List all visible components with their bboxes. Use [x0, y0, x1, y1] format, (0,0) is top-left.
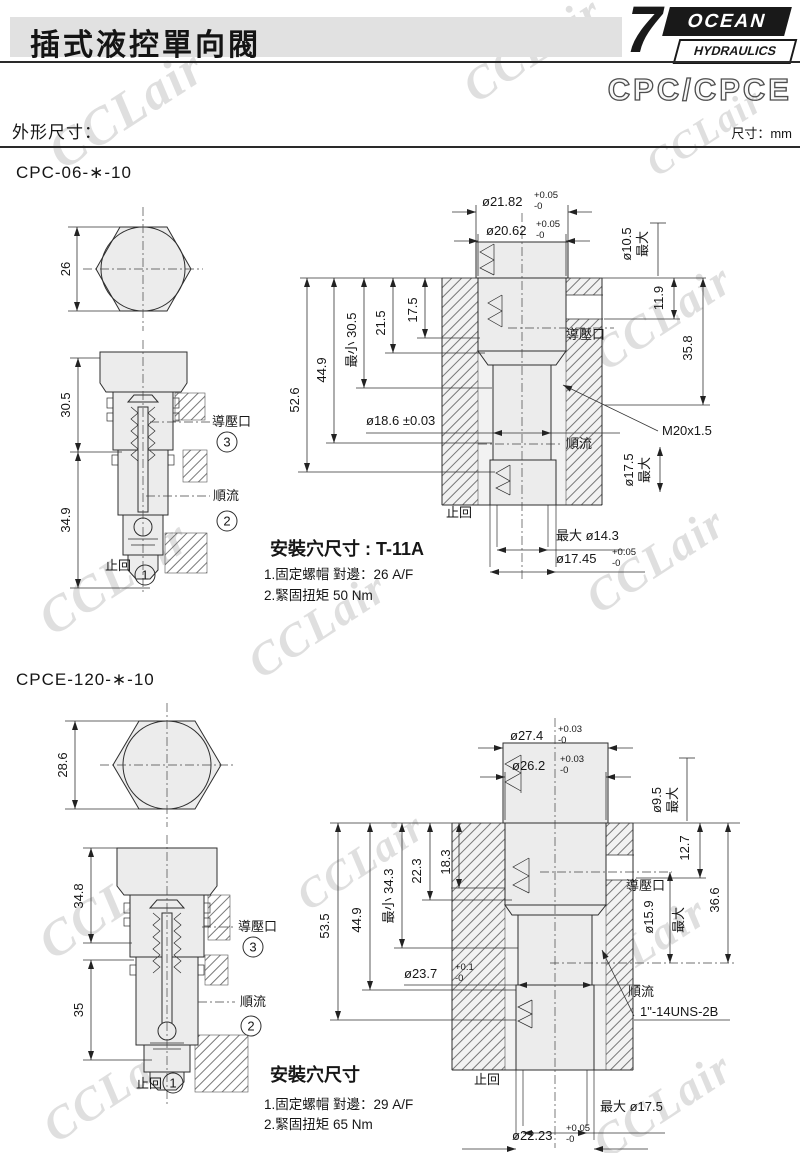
- fig2-bore2-tol-minus: -0: [560, 765, 568, 776]
- fig2-bottom-bore2-dim: ø22.23: [512, 1128, 552, 1143]
- fig2-bottom-bore2-tol-plus: +0.05: [566, 1123, 590, 1134]
- fig1-flow-port-label: 順流: [213, 488, 239, 503]
- fig1-total-depth-dim: 52.6: [287, 387, 302, 412]
- fig2-mid-bore-dim: ø15.9: [641, 900, 656, 933]
- fig1-out-bore-dim: ø17.5: [621, 453, 636, 486]
- fig2-depth4-dim: 22.3: [409, 858, 424, 883]
- fig1-port-1: 1: [141, 568, 148, 583]
- fig1-cavity-pilot-label: 導壓口: [566, 327, 605, 342]
- fig1-bottom-bore1-dim: 最大 ø14.3: [556, 528, 619, 543]
- fig2-depth2-dim: 44.9: [349, 907, 364, 932]
- fig2-bore2-dim: ø26.2: [512, 758, 545, 773]
- fig2-cavity-check-label: 止回: [474, 1072, 500, 1087]
- fig1-bore1-dim: ø21.82: [482, 194, 522, 209]
- fig1-note-2: 2.緊固扭矩 50 Nm: [264, 588, 373, 603]
- fig2-bore1-tol-plus: +0.03: [558, 724, 582, 735]
- fig1-valve-section: 30.5 34.9 導壓口 3 順流 2 止回 1: [58, 340, 251, 595]
- brand-name: OCEAN: [662, 7, 792, 36]
- fig2-cavity-title: 安裝穴尺寸: [270, 1064, 360, 1085]
- fig2-length-top-dim: 34.8: [71, 883, 86, 908]
- fig2-port-3: 3: [249, 940, 256, 955]
- fig2-valve-section: 34.8 35 導壓口 3 順流 2 止回 1: [71, 835, 277, 1105]
- fig1-bore2-dim: ø20.62: [486, 223, 526, 238]
- fig1-bore2-tol-minus: -0: [536, 230, 544, 241]
- fig2-hex-view: 28.6: [55, 703, 234, 827]
- catalog-page: CCLair CCLair CCLair CCLair CCLair CCLai…: [0, 0, 800, 1153]
- fig1-depth2-dim: 44.9: [314, 357, 329, 382]
- fig2-pilot-port-label: 導壓口: [238, 919, 277, 934]
- brand-sub: HYDRAULICS: [675, 41, 795, 62]
- fig1-bore1-tol-minus: -0: [534, 201, 542, 212]
- fig1-bottom-bore2-tol-plus: +0.05: [612, 547, 636, 558]
- fig1-cavity-flow-label: 順流: [566, 436, 592, 451]
- fig1-length-top-dim: 30.5: [58, 392, 73, 417]
- fig2-seat-bore-tol-minus: -0: [455, 973, 463, 984]
- fig2-thread-depth-dim: 36.6: [707, 887, 722, 912]
- fig1-model: CPC-06-∗-10: [16, 163, 132, 182]
- fig1-depth5-dim: 17.5: [405, 297, 420, 322]
- fig1-hex-af-dim: 26: [58, 262, 73, 276]
- fig1-pilot-port-label: 導壓口: [212, 414, 251, 429]
- fig2-bore2-tol-plus: +0.03: [560, 754, 584, 765]
- fig1-bore2-tol-plus: +0.05: [536, 219, 560, 230]
- brand-logo: 7 OCEAN HYDRAULICS: [626, 2, 794, 64]
- fig1-bottom-bore2-dim: ø17.45: [556, 551, 596, 566]
- fig1-pilot-bore-dim: ø10.5: [619, 227, 634, 260]
- fig2-port-2: 2: [247, 1019, 254, 1034]
- fig1-bore1-tol-plus: +0.05: [534, 190, 558, 201]
- fig2-note-2: 2.緊固扭矩 65 Nm: [264, 1117, 373, 1132]
- fig2-model: CPCE-120-∗-10: [16, 670, 155, 689]
- fig2-pilot-bore-dim: ø9.5: [649, 787, 664, 813]
- fig2-seat-bore-tol-plus: +0.1: [455, 962, 474, 973]
- fig2-depth3-dim: 最小 34.3: [381, 869, 396, 924]
- fig2-bottom-bore2-tol-minus: -0: [566, 1134, 574, 1145]
- fig1-length-bottom-dim: 34.9: [58, 507, 73, 532]
- section-label: 外形尺寸：: [12, 118, 102, 143]
- fig2-seat-bore-dim: ø23.7: [404, 966, 437, 981]
- fig2-port-1: 1: [169, 1076, 176, 1091]
- fig1-note-1: 1.固定螺帽 對邊：26 A/F: [264, 567, 413, 582]
- fig1-cavity-section: ø21.82 +0.05 -0 ø20.62 +0.05 -0 ø10.5 最大…: [287, 190, 712, 580]
- fig2-pilot-depth-dim: 12.7: [677, 835, 692, 860]
- fig2-bore1-tol-minus: -0: [558, 735, 566, 746]
- fig2-thread-spec: 1"-14UNS-2B: [640, 1004, 718, 1019]
- fig1-hex-view: 26: [58, 207, 203, 331]
- section-divider: [0, 146, 800, 148]
- fig2-depth5-dim: 18.3: [438, 849, 453, 874]
- fig1-seat-bore-dim: ø18.6 ±0.03: [366, 413, 435, 428]
- page-title: 插式液控單向閥: [30, 20, 261, 64]
- fig2-note-1: 1.固定螺帽 對邊：29 A/F: [264, 1097, 413, 1112]
- fig2-pilot-bore-max: 最大: [665, 787, 680, 813]
- fig2-cavity-flow-label: 順流: [628, 984, 654, 999]
- fig1-pilot-depth-dim: 11.9: [651, 286, 666, 310]
- fig2-bottom-bore1-dim: 最大 ø17.5: [600, 1099, 663, 1114]
- fig1-check-port-label: 止回: [105, 558, 131, 573]
- fig1-thread-spec: M20x1.5: [662, 423, 712, 438]
- fig1-thread-depth-dim: 35.8: [680, 335, 695, 360]
- fig1-out-bore-max: 最大: [637, 457, 652, 483]
- fig1-drawing: CPC-06-∗-10 26: [0, 155, 800, 660]
- fig1-port-3: 3: [223, 435, 230, 450]
- fig2-bore1-dim: ø27.4: [510, 728, 543, 743]
- fig2-flow-port-label: 順流: [240, 994, 266, 1009]
- fig1-cavity-title: 安裝穴尺寸 : T-11A: [270, 538, 424, 559]
- series-code: CPC/CPCE: [608, 72, 792, 108]
- fig2-length-bottom-dim: 35: [71, 1003, 86, 1017]
- unit-label: 尺寸：mm: [731, 123, 792, 142]
- fig1-depth3-dim: 最小 30.5: [344, 313, 359, 368]
- fig1-port-2: 2: [223, 514, 230, 529]
- fig1-bottom-bore2-tol-minus: -0: [612, 558, 620, 569]
- fig2-mid-bore-max: 最大: [671, 907, 686, 933]
- fig1-pilot-bore-max: 最大: [635, 231, 650, 257]
- fig2-hex-af-dim: 28.6: [55, 752, 70, 777]
- fig2-cavity-pilot-label: 導壓口: [626, 878, 665, 893]
- fig2-check-port-label: 止回: [136, 1076, 162, 1091]
- fig2-drawing: CPCE-120-∗-10 28.6: [0, 660, 800, 1153]
- fig2-cavity-section: ø27.4 +0.03 -0 ø26.2 +0.03 -0 ø9.5 最大 12…: [317, 718, 740, 1149]
- fig2-total-depth-dim: 53.5: [317, 913, 332, 938]
- fig1-cavity-check-label: 止回: [446, 505, 472, 520]
- fig1-depth4-dim: 21.5: [373, 310, 388, 335]
- header-divider: [0, 61, 800, 63]
- brand-name-box: OCEAN: [662, 7, 792, 36]
